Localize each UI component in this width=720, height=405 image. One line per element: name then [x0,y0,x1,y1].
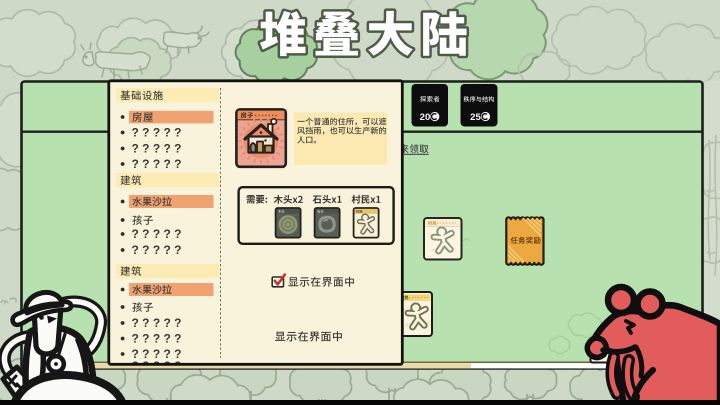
svg-text:? ? ? ? ?: ? ? ? ? ? [132,332,182,346]
svg-text:20: 20 [420,112,431,123]
svg-text:? ? ? ? ?: ? ? ? ? ? [132,126,182,140]
svg-text:25: 25 [470,112,481,123]
svg-text:? ? ? ? ?: ? ? ? ? ? [132,142,182,156]
svg-text:? ? ? ? ?: ? ? ? ? ? [132,157,182,171]
svg-text:? ? ? ? ?: ? ? ? ? ? [132,227,182,241]
svg-text:? ? ? ? ?: ? ? ? ? ? [132,316,182,330]
svg-text:? ? ? ? ?: ? ? ? ? ? [132,243,182,257]
